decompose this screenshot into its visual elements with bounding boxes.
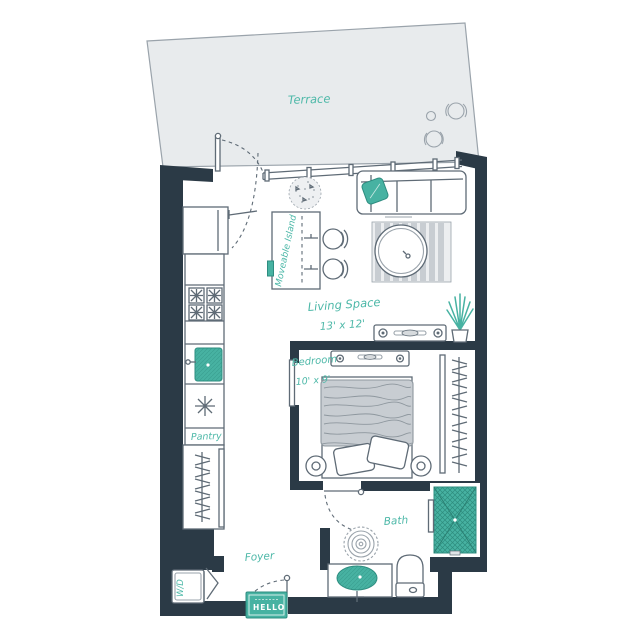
terrace-area: Terrace: [147, 23, 479, 167]
hello-doormat: HELLO: [246, 592, 287, 618]
shower-door: [429, 500, 434, 532]
closet-sliding-door: [440, 355, 445, 473]
coffee-table: [375, 225, 427, 277]
toilet: [396, 555, 424, 597]
pantry-sliding-door: [219, 449, 224, 527]
nightstand-lamp: [411, 456, 431, 476]
dresser: [331, 351, 409, 366]
stove-burner-icon: [189, 288, 204, 303]
pantry-label: Pantry: [191, 431, 223, 443]
floor-plan-drawing: Terrace: [0, 0, 634, 634]
vanity-sink: [328, 564, 392, 602]
refrigerator: [183, 207, 228, 254]
foyer-label: Foyer: [244, 550, 275, 564]
bed: [321, 377, 413, 478]
living-dims: 13' x 12': [319, 318, 365, 333]
washer-dryer: W/D: [172, 570, 204, 603]
island-stool: [323, 229, 348, 249]
bath-door: [324, 489, 364, 530]
plant: [447, 294, 473, 342]
bath: Bath: [324, 483, 480, 602]
nightstand-lamp: [306, 456, 326, 476]
shower: [429, 483, 481, 557]
sofa: [357, 171, 466, 217]
kitchen-island: Moveable Island: [268, 212, 321, 289]
stove-burner-icon: [207, 288, 222, 303]
doormat-label: HELLO: [253, 603, 285, 612]
dishwasher: [195, 396, 215, 416]
media-console: [374, 325, 446, 341]
floor-plan-page: Terrace: [0, 0, 634, 634]
washer-dryer-label: W/D: [176, 579, 186, 597]
bifold-door: [206, 568, 218, 599]
island-stool: [323, 259, 348, 279]
stove-burner-icon: [207, 305, 222, 320]
round-rug: [289, 177, 321, 209]
pantry-closet: [183, 445, 224, 529]
bedroom: Bedroom 10' x 9': [290, 351, 468, 478]
bedroom-closet: [440, 355, 467, 473]
bath-rug: [344, 527, 378, 561]
kitchen-entry-door: [229, 153, 258, 248]
bath-label: Bath: [383, 514, 408, 528]
kitchen: Pantry: [183, 207, 228, 529]
stove-burner-icon: [189, 305, 204, 320]
living-label: Living Space: [307, 295, 381, 314]
terrace-label: Terrace: [288, 92, 331, 107]
